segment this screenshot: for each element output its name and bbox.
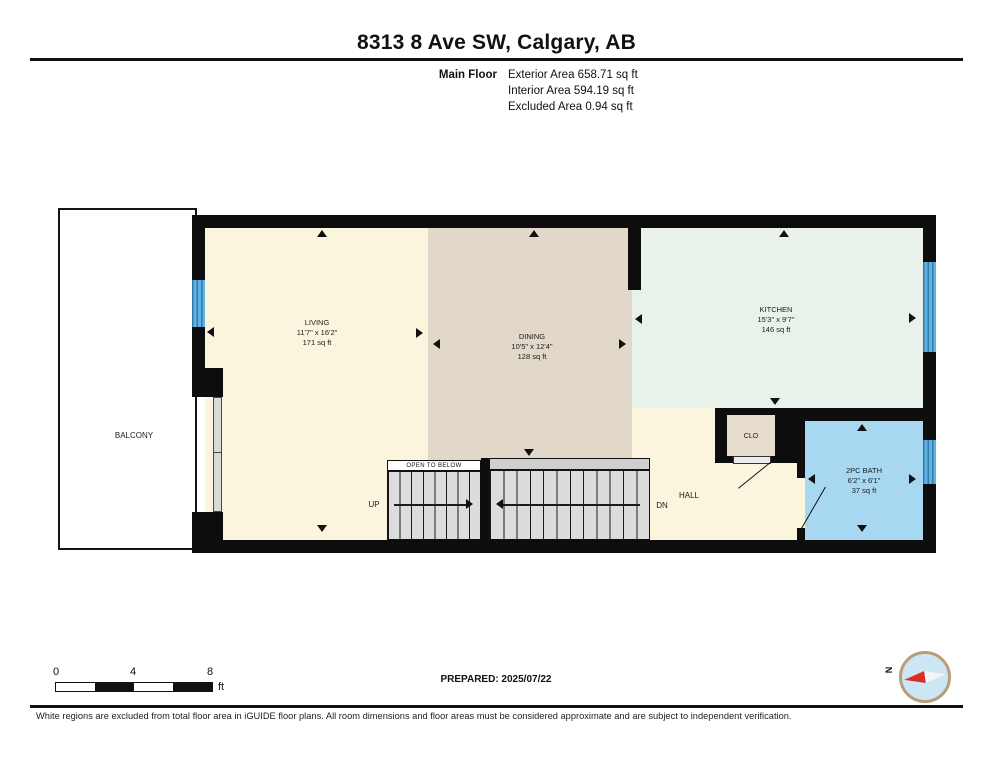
living-dims: 11'7" x 16'2" [257,328,377,338]
scale-segment [95,683,134,691]
arrow-bath-right-icon [909,474,916,484]
compass-needle-south [924,668,946,683]
scale-unit: ft [218,681,224,693]
prepared-date: PREPARED: 2025/07/22 [396,674,596,685]
wall-top [192,215,936,228]
kitchen-dims: 15'3" x 9'7" [716,315,836,325]
bath-dims: 6'2" x 6'1" [804,476,924,486]
kitchen-label: KITCHEN 15'3" x 9'7" 146 sq ft [716,305,836,334]
dining-label: DINING 10'5" x 12'4" 128 sq ft [472,332,592,361]
sliding-door-icon [213,397,222,512]
arrow-bath-down-icon [857,525,867,532]
arrow-bath-left-icon [808,474,815,484]
wall-left-middle [192,327,205,368]
wall-right-lower [923,484,936,540]
arrow-kitchen-down-icon [770,398,780,405]
arrow-dining-down-icon [524,449,534,456]
bath-name: 2PC BATH [804,466,924,476]
arrow-living-right-icon [416,328,423,338]
window-kitchen-icon [923,262,936,352]
kitchen-name: KITCHEN [716,305,836,315]
arrow-dining-left-icon [433,339,440,349]
scale-segment [56,683,95,691]
wall-right-middle [923,352,936,440]
arrow-living-up-icon [317,230,327,237]
bath-label: 2PC BATH 6'2" x 6'1" 37 sq ft [804,466,924,495]
window-bath-icon [923,440,936,484]
bath-area: 37 sq ft [804,486,924,496]
closet-door-icon [733,456,771,464]
scale-segment [134,683,173,691]
arrow-living-left-icon [207,327,214,337]
scale-tick-8: 8 [200,666,220,678]
living-area: 171 sq ft [257,338,377,348]
wall-dining-kitchen-stub [628,228,641,290]
arrow-kitchen-up-icon [779,230,789,237]
balcony-area [58,208,197,550]
wall-left-jut [192,368,223,397]
interior-area: Interior Area 594.19 sq ft [508,85,634,97]
arrow-bath-up-icon [857,424,867,431]
scale-tick-0: 0 [46,666,66,678]
compass-needle [899,651,951,703]
dn-label: DN [644,501,680,511]
header-divider [30,58,963,61]
closet-label: CLO [726,432,776,441]
stairs-down-direction-line [500,504,640,506]
stairs-down-arrow-icon [496,499,503,509]
stairs-down-landing [489,458,650,470]
dining-name: DINING [472,332,592,342]
dining-dims: 10'5" x 12'4" [472,342,592,352]
stairs-up-arrow-icon [466,499,473,509]
wall-left-upper [192,215,205,280]
hall-label: HALL [659,491,719,501]
kitchen-area: 146 sq ft [716,325,836,335]
exterior-area: Exterior Area 658.71 sq ft [508,69,638,81]
compass-icon [899,651,951,703]
living-name: LIVING [257,318,377,328]
stairs-up-direction-line [394,504,470,506]
wall-bottom [192,540,936,553]
disclaimer-text: White regions are excluded from total fl… [36,711,966,721]
scale-bar [55,682,213,692]
scale-tick-4: 4 [123,666,143,678]
floor-plan-page: 8313 8 Ave SW, Calgary, AB Main Floor Ex… [0,0,993,768]
open-to-below-label: OPEN TO BELOW [387,460,481,471]
up-label: UP [354,500,394,510]
compass-north-label: N [884,663,894,677]
arrow-kitchen-right-icon [909,313,916,323]
stairs-divider-wall [481,458,489,540]
wall-left-corner [192,512,223,540]
floor-label: Main Floor [380,69,497,81]
arrow-dining-up-icon [529,230,539,237]
dining-area: 128 sq ft [472,352,592,362]
arrow-dining-right-icon [619,339,626,349]
balcony-label: BALCONY [84,431,184,441]
arrow-kitchen-left-icon [635,314,642,324]
footer-divider [30,705,963,708]
wall-right-upper [923,215,936,262]
scale-segment [173,683,212,691]
excluded-area: Excluded Area 0.94 sq ft [508,101,633,113]
sliding-door-divider [213,452,222,453]
arrow-living-down-icon [317,525,327,532]
window-living-icon [192,280,205,327]
compass-needle-north [903,671,925,686]
page-title: 8313 8 Ave SW, Calgary, AB [0,31,993,55]
living-label: LIVING 11'7" x 16'2" 171 sq ft [257,318,377,347]
